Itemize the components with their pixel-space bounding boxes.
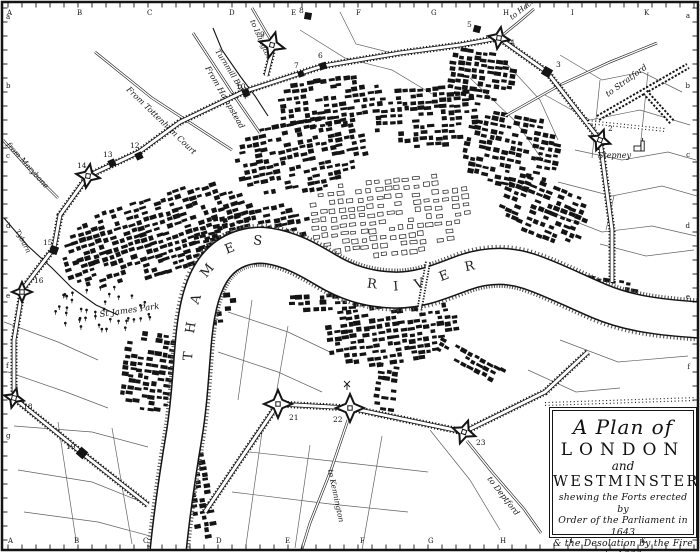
fort-4: 4: [488, 27, 515, 49]
fort-number-5: 5: [467, 20, 472, 29]
cartouche-and: and: [553, 460, 693, 473]
built-area-east-end: [463, 111, 562, 191]
windmill-icon: [344, 381, 350, 390]
built-area-burned-city-fire-1666: [310, 174, 470, 258]
grid-letter-bottom-A: A: [7, 537, 14, 545]
grid-letter-left-g: g: [6, 432, 11, 440]
cartouche-plan-of: A Plan of: [553, 415, 693, 439]
fort-5: 5: [467, 20, 481, 33]
built-area-bermondsey-ribbon: [436, 337, 507, 383]
grid-letter-right-f: f: [687, 363, 691, 371]
grid-letter-left-b: b: [6, 82, 11, 90]
grid-letter-bottom-G: G: [428, 537, 434, 545]
road-hampstead: From Hampstead: [193, 33, 260, 133]
grid-letter-right-e: e: [686, 293, 690, 301]
fort-number-4: 4: [510, 38, 515, 47]
cartouche-subtitle-2: Order of the Parliament in 1643: [553, 515, 693, 538]
grid-letter-top-H: H: [503, 9, 509, 17]
tyburn-label: Tyburn: [13, 228, 32, 255]
grid-letter-bottom-B: B: [74, 537, 79, 545]
road-deptford-label: to Deptford: [485, 475, 521, 517]
cartouche-subtitle-1: shewing the Forts erected by: [553, 492, 693, 515]
grid-letter-bottom-E: E: [285, 537, 290, 545]
dotted-track: [545, 399, 696, 404]
road-marybone: from Marybone: [3, 140, 58, 198]
built-area-clerkenwell: [278, 75, 383, 128]
fort-18: 18: [4, 388, 32, 411]
fort-number-10: 10: [236, 82, 246, 91]
grid-letter-top-E: E: [291, 9, 296, 17]
grid-letter-left-d: d: [6, 222, 11, 230]
road-hackney: to Hackney: [499, 0, 548, 38]
fort-13: 13: [103, 150, 116, 167]
cartouche-westminster: WESTMINSTER: [553, 473, 693, 492]
fort-number-3: 3: [556, 60, 561, 69]
map-page: THAMESRIVERTurnmill BrookTyburnFrom Tott…: [0, 0, 700, 552]
grid-letter-left-f: f: [6, 362, 10, 370]
fort-number-15: 15: [43, 238, 53, 247]
road-hampstead-label: From Hampstead: [203, 64, 247, 131]
grid-letter-top-D: D: [229, 9, 235, 17]
fort-number-13: 13: [103, 150, 113, 159]
built-area-borough-ribbon: [373, 362, 399, 417]
grid-letter-right-b: b: [686, 82, 691, 90]
built-area-holborn: [235, 116, 369, 195]
fort-number-7: 7: [294, 61, 299, 70]
grid-letter-bottom-H: H: [500, 537, 506, 545]
grid-letter-top-K: K: [644, 9, 650, 17]
road-kennington-label: to Kennington: [326, 469, 346, 524]
road-kennington: to Kennington: [301, 420, 348, 552]
grid-letter-top-F: F: [356, 9, 361, 17]
fort-22: 22: [333, 394, 364, 424]
road-marybone-label: from Marybone: [4, 140, 51, 191]
grid-letter-left-e: e: [6, 292, 10, 300]
dotted-track: [588, 122, 665, 130]
fort-number-2: 2: [608, 124, 613, 133]
grid-letter-right-c: c: [686, 151, 690, 159]
grid-letter-top-I: I: [571, 9, 574, 17]
grid-letter-top-B: B: [77, 9, 82, 17]
cartouche-london: LONDON: [553, 440, 693, 460]
fort-number-12: 12: [130, 141, 140, 150]
built-area-whitechapel: [499, 175, 588, 243]
road-deptford: to Deptford: [467, 441, 541, 533]
label-stepney: Stepney: [598, 151, 631, 160]
fort-number-23: 23: [476, 438, 486, 447]
title-cartouche: A Plan of LONDON and WESTMINSTER shewing…: [549, 407, 697, 538]
grid-letter-bottom-F: F: [360, 537, 365, 545]
cartouche-subtitle-3: & the Desolation by the Fire in 1666: [553, 538, 693, 552]
fort-number-22: 22: [333, 415, 343, 424]
fort-number-19: 19: [66, 442, 76, 451]
grid-letter-bottom-C: C: [143, 537, 148, 545]
fort-number-8: 8: [299, 6, 304, 15]
fort-number-6: 6: [318, 51, 323, 60]
grid-letter-right-a: a: [686, 12, 690, 20]
fort-number-9: 9: [260, 30, 265, 39]
fort-number-21: 21: [289, 413, 299, 422]
grid-letter-left-c: c: [6, 152, 10, 160]
fort-number-16: 16: [34, 276, 44, 285]
road-stratford-causeway-spur: [645, 92, 672, 122]
stepney-church-icon: [634, 138, 644, 151]
grid-letter-top-G: G: [431, 9, 437, 17]
grid-letter-bottom-D: D: [216, 537, 222, 545]
grid-letter-top-C: C: [147, 9, 152, 17]
fort-number-14: 14: [77, 161, 87, 170]
fort-number-18: 18: [23, 402, 33, 411]
road-stratford: to Stratford: [505, 43, 657, 116]
grid-letter-left-a: a: [6, 13, 10, 21]
grid-letter-right-d: d: [686, 222, 691, 230]
fort-8: 8: [299, 6, 311, 19]
